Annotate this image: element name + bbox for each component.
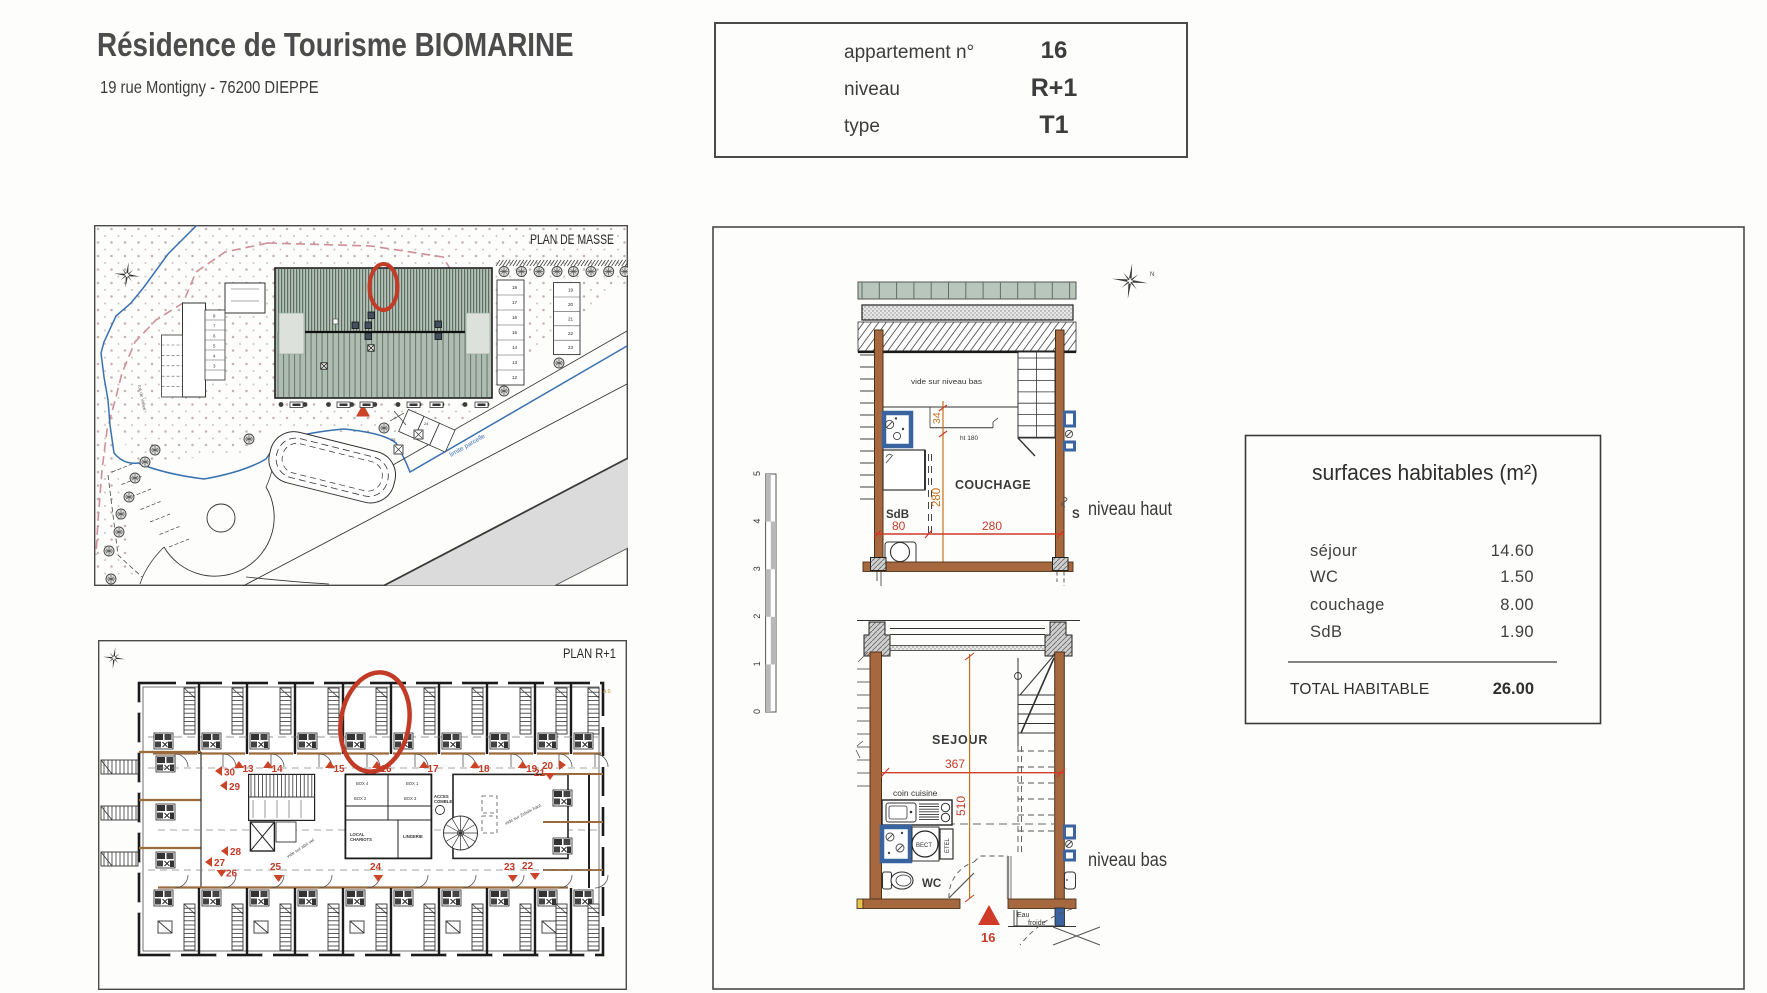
svg-text:ht 180: ht 180 [960,435,978,442]
svg-text:280: 280 [931,488,943,507]
svg-text:21: 21 [534,768,546,779]
svg-text:vide sur niveau bas: vide sur niveau bas [911,377,982,386]
svg-text:niveau haut: niveau haut [1088,499,1173,520]
svg-text:510: 510 [954,796,968,816]
svg-text:23: 23 [568,345,574,350]
svg-text:coin cuisine: coin cuisine [893,788,938,798]
svg-text:14: 14 [272,764,284,775]
svg-text:1: 1 [752,661,762,666]
svg-text:18: 18 [512,285,518,290]
svg-text:27: 27 [214,858,226,869]
svg-text:22: 22 [522,861,534,872]
svg-text:26.00: 26.00 [1493,680,1534,698]
svg-text:SdB: SdB [1310,623,1342,641]
svg-text:18: 18 [479,764,491,775]
svg-text:21: 21 [568,316,574,321]
svg-text:A.0: A.0 [603,689,611,695]
svg-text:PLAN R+1: PLAN R+1 [563,646,616,661]
svg-text:8.00: 8.00 [1500,596,1534,614]
svg-text:LINGERIE: LINGERIE [403,834,423,839]
svg-text:N: N [1150,272,1154,278]
svg-text:CHARIOTS: CHARIOTS [350,837,372,842]
svg-text:15: 15 [512,330,518,335]
svg-text:34: 34 [931,412,943,424]
svg-text:13: 13 [243,764,255,775]
svg-text:BOX 2: BOX 2 [354,796,367,801]
svg-text:WC: WC [922,878,941,890]
svg-text:4: 4 [752,519,762,524]
svg-text:14.60: 14.60 [1491,542,1534,560]
svg-text:24: 24 [370,862,382,873]
svg-text:19: 19 [568,288,574,293]
svg-text:280: 280 [982,519,1002,533]
svg-text:S: S [1072,509,1080,521]
svg-text:COMBLES: COMBLES [434,799,455,804]
svg-text:23: 23 [504,862,516,873]
svg-text:1.50: 1.50 [1500,568,1534,586]
svg-text:26: 26 [226,869,238,880]
svg-text:niveau bas: niveau bas [1088,850,1167,871]
svg-text:ETEL: ETEL [945,837,951,853]
svg-text:TOTAL HABITABLE: TOTAL HABITABLE [1290,681,1429,698]
svg-text:13: 13 [512,360,518,365]
svg-text:20: 20 [568,302,574,307]
svg-text:WC: WC [1310,568,1338,586]
svg-text:BOX 1: BOX 1 [406,781,419,786]
svg-text:16: 16 [512,315,518,320]
svg-text:surfaces habitables (m²): surfaces habitables (m²) [1312,460,1538,485]
svg-text:SEJOUR: SEJOUR [932,733,988,747]
svg-text:BOX 3: BOX 3 [404,796,417,801]
svg-text:COUCHAGE: COUCHAGE [955,478,1031,492]
svg-text:PLAN DE MASSE: PLAN DE MASSE [530,231,614,247]
svg-text:17: 17 [428,764,440,775]
svg-text:séjour: séjour [1310,542,1357,560]
svg-text:12: 12 [512,375,518,380]
svg-text:15: 15 [334,764,346,775]
svg-text:24: 24 [424,421,429,426]
svg-text:3: 3 [752,566,762,571]
svg-text:16: 16 [981,930,995,945]
svg-text:couchage: couchage [1310,596,1385,614]
svg-text:BOX 4: BOX 4 [356,781,369,786]
svg-text:5: 5 [752,471,762,476]
svg-text:14: 14 [512,345,518,350]
svg-text:1.90: 1.90 [1500,623,1534,641]
svg-text:25: 25 [391,437,396,442]
svg-text:29: 29 [229,782,241,793]
svg-text:28: 28 [230,847,242,858]
svg-text:0: 0 [752,709,762,714]
svg-text:froide: froide [1028,920,1046,927]
svg-text:367: 367 [945,757,965,771]
svg-text:2: 2 [752,614,762,619]
svg-text:22: 22 [568,331,574,336]
svg-text:80: 80 [892,519,906,533]
svg-text:BECT: BECT [916,843,932,849]
svg-text:Eau: Eau [1017,912,1030,919]
svg-text:17: 17 [512,300,518,305]
svg-text:25: 25 [270,862,282,873]
svg-text:30: 30 [224,768,236,779]
